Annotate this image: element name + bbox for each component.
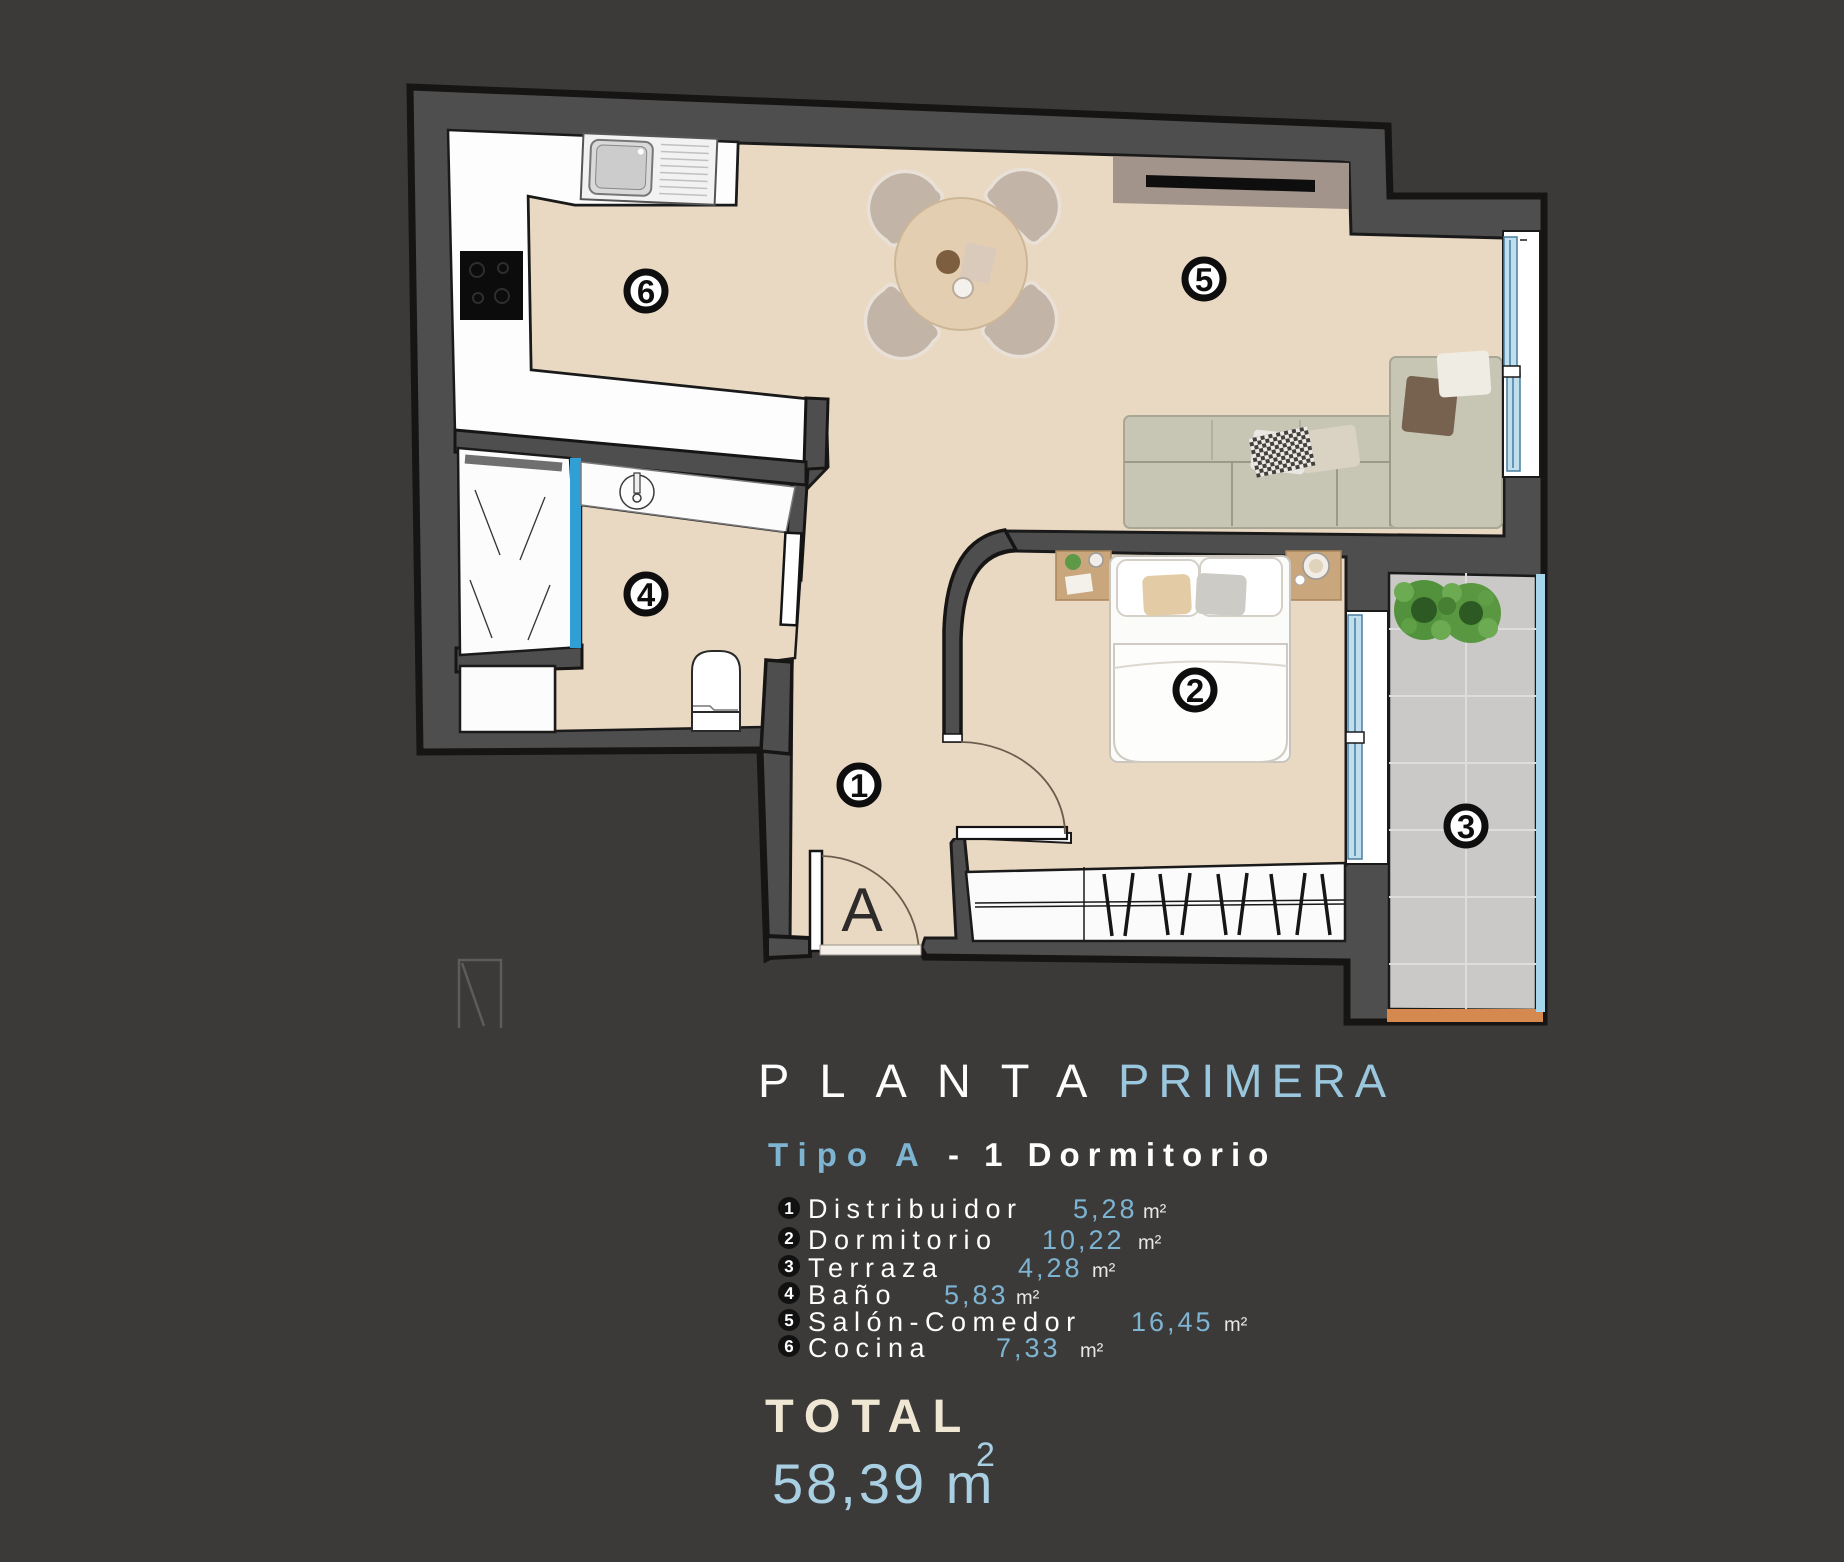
svg-text:6: 6 [637,273,655,310]
svg-text:m²: m² [1092,1260,1116,1282]
svg-text:Distribuidor: Distribuidor [808,1194,1023,1224]
svg-text:2: 2 [976,1436,995,1474]
svg-text:TOTAL: TOTAL [765,1389,972,1442]
svg-text:2: 2 [1186,672,1204,709]
svg-text:2: 2 [784,1229,793,1248]
svg-text:10,22: 10,22 [1042,1225,1125,1255]
svg-text:A: A [841,876,883,945]
svg-text:Baño: Baño [808,1280,897,1310]
svg-text:PLANTA: PLANTA [758,1054,1117,1107]
svg-text:3: 3 [784,1257,793,1276]
svg-text:Terraza: Terraza [808,1253,944,1283]
svg-text:4,28: 4,28 [1018,1253,1083,1283]
svg-text:7,33: 7,33 [996,1333,1061,1363]
svg-text:Tipo A: Tipo A [768,1136,929,1173]
svg-text:16,45: 16,45 [1131,1307,1214,1337]
svg-text:m²: m² [1080,1340,1104,1362]
svg-text:m²: m² [1143,1201,1167,1223]
svg-text:- 1 Dormitorio: - 1 Dormitorio [948,1136,1276,1173]
svg-text:m²: m² [1224,1314,1248,1336]
svg-text:1: 1 [784,1199,793,1218]
svg-text:m²: m² [1016,1287,1040,1309]
svg-text:Cocina: Cocina [808,1333,931,1363]
svg-text:PRIMERA: PRIMERA [1118,1054,1395,1107]
svg-text:6: 6 [784,1337,793,1356]
svg-text:5,83: 5,83 [944,1280,1009,1310]
svg-text:58,39 m: 58,39 m [772,1452,995,1515]
svg-text:5: 5 [1195,261,1213,298]
svg-text:5: 5 [784,1311,793,1330]
svg-text:Dormitorio: Dormitorio [808,1225,998,1255]
svg-text:4: 4 [784,1284,794,1303]
svg-text:5,28: 5,28 [1073,1194,1138,1224]
svg-text:m²: m² [1138,1232,1162,1254]
svg-text:1: 1 [850,767,868,804]
svg-text:3: 3 [1457,808,1475,845]
svg-text:4: 4 [637,576,656,613]
